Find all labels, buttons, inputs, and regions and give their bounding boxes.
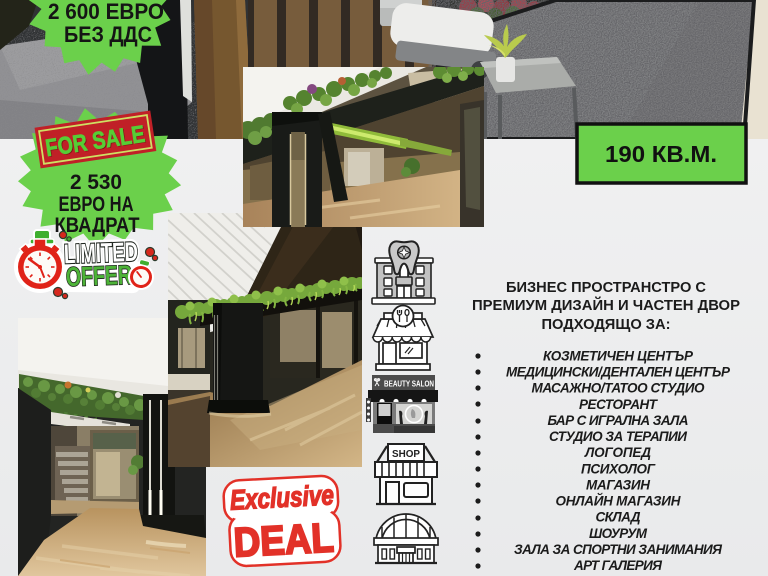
svg-text:2 530: 2 530 xyxy=(70,171,122,194)
svg-text:БАР С ИГРАЛНА ЗАЛА: БАР С ИГРАЛНА ЗАЛА xyxy=(548,413,689,428)
svg-text:SHOP: SHOP xyxy=(392,449,420,460)
svg-text:МАСАЖНО/ТАТОО СТУДИО: МАСАЖНО/ТАТОО СТУДИО xyxy=(532,381,705,396)
svg-text:МАГАЗИН: МАГАЗИН xyxy=(586,477,650,492)
svg-text:ШОУРУМ: ШОУРУМ xyxy=(589,526,648,541)
svg-text:Exclusive: Exclusive xyxy=(229,479,334,515)
svg-text:2 600 ЕВРО: 2 600 ЕВРО xyxy=(48,0,164,24)
svg-text:СТУДИО ЗА ТЕРАПИИ: СТУДИО ЗА ТЕРАПИИ xyxy=(549,429,687,444)
svg-text:ПСИХОЛОГ: ПСИХОЛОГ xyxy=(581,461,656,476)
svg-text:OFFER: OFFER xyxy=(65,260,132,292)
svg-text:ЕВРО НА: ЕВРО НА xyxy=(59,193,134,216)
svg-text:КОЗМЕТИЧЕН ЦЕНТЪР: КОЗМЕТИЧЕН ЦЕНТЪР xyxy=(543,349,694,364)
svg-text:190 КВ.М.: 190 КВ.М. xyxy=(605,141,717,167)
svg-text:ЗАЛА ЗА СПОРТНИ ЗАНИМАНИЯ: ЗАЛА ЗА СПОРТНИ ЗАНИМАНИЯ xyxy=(514,542,723,557)
svg-text:КВАДРАТ: КВАДРАТ xyxy=(55,214,140,237)
svg-text:ПРЕМИУМ ДИЗАЙН И ЧАСТЕН ДВОР: ПРЕМИУМ ДИЗАЙН И ЧАСТЕН ДВОР xyxy=(472,296,740,314)
svg-text:ЛОГОПЕД: ЛОГОПЕД xyxy=(584,445,651,460)
svg-text:ОНЛАЙН МАГАЗИН: ОНЛАЙН МАГАЗИН xyxy=(556,493,681,509)
svg-text:БИЗНЕС ПРОСТРАНСТРО С: БИЗНЕС ПРОСТРАНСТРО С xyxy=(506,280,707,296)
svg-text:BEAUTY SALON: BEAUTY SALON xyxy=(384,380,434,389)
svg-text:БЕЗ ДДС: БЕЗ ДДС xyxy=(64,22,152,47)
svg-text:АРТ ГАЛЕРИЯ: АРТ ГАЛЕРИЯ xyxy=(573,558,663,573)
svg-text:МЕДИЦИНСКИ/ДЕНТАЛЕН ЦЕНТЪР: МЕДИЦИНСКИ/ДЕНТАЛЕН ЦЕНТЪР xyxy=(506,365,731,380)
svg-text:DEAL: DEAL xyxy=(233,514,335,565)
svg-text:ПОДХОДЯЩО ЗА:: ПОДХОДЯЩО ЗА: xyxy=(542,317,671,333)
svg-text:РЕСТОРАНТ: РЕСТОРАНТ xyxy=(579,397,659,412)
svg-text:СКЛАД: СКЛАД xyxy=(596,510,641,525)
